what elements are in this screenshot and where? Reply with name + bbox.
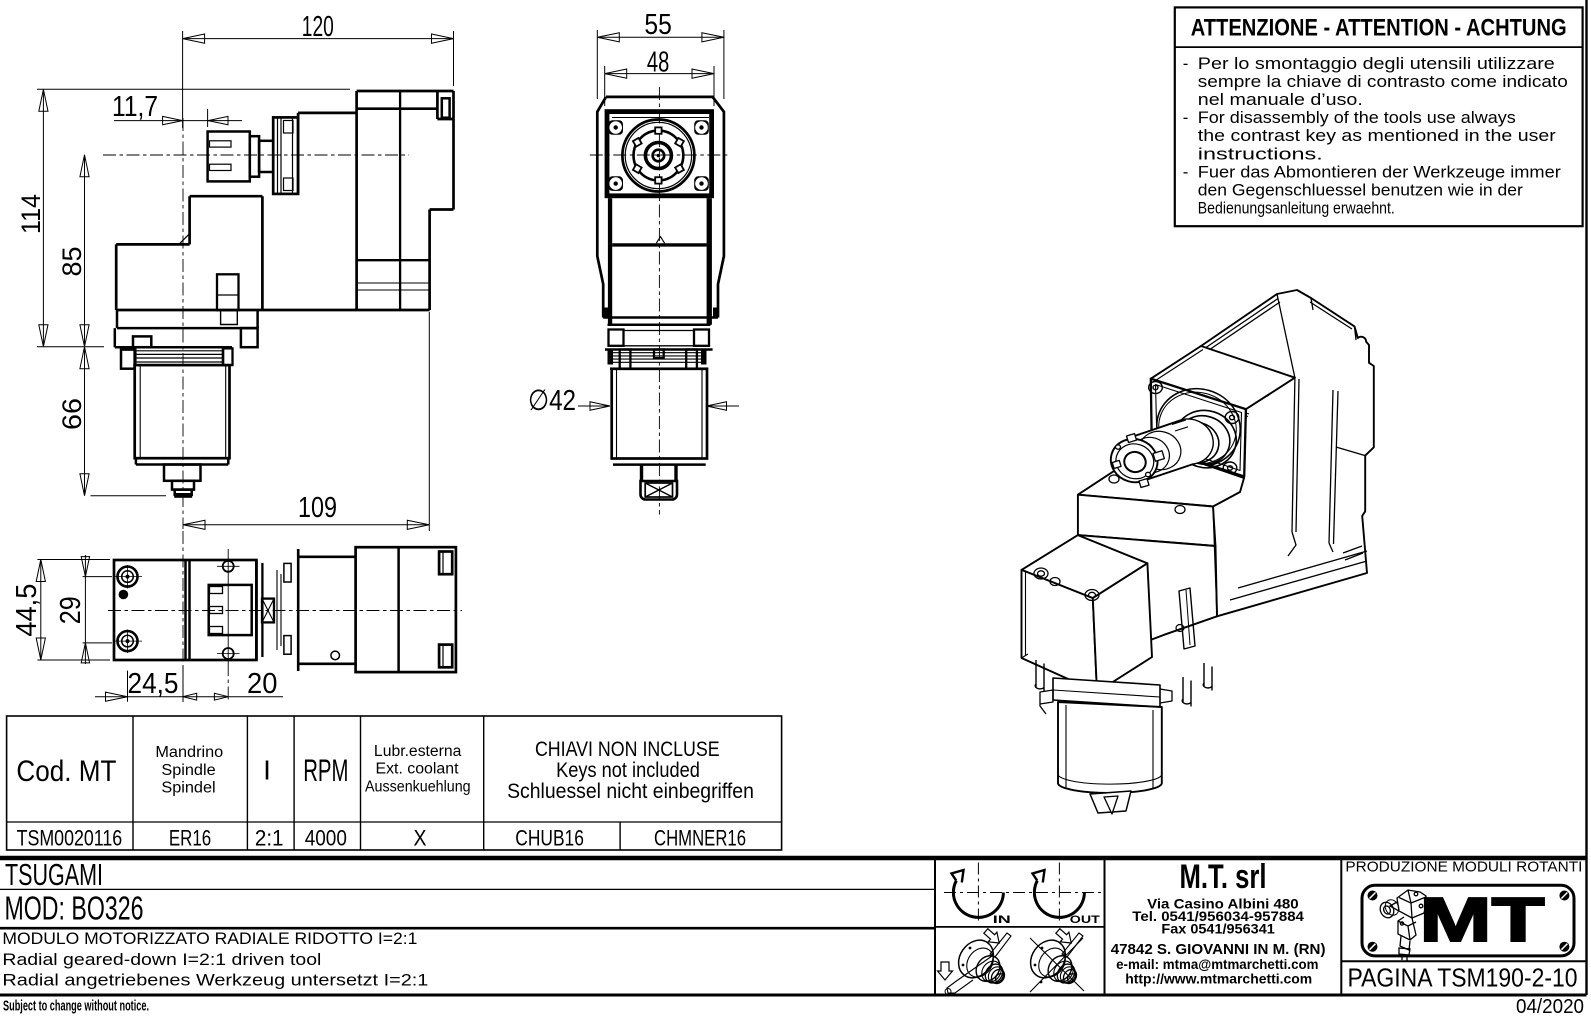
svg-text:CHIAVI NON INCLUSE: CHIAVI NON INCLUSE	[535, 738, 720, 761]
svg-text:Spindle: Spindle	[161, 762, 215, 779]
svg-text:I: I	[263, 754, 271, 785]
svg-text:instructions.: instructions.	[1198, 144, 1323, 163]
svg-text:CHMNER16: CHMNER16	[654, 826, 746, 851]
svg-text:nel manuale d’uso.: nel manuale d’uso.	[1198, 90, 1363, 109]
svg-text:OUT: OUT	[1070, 914, 1100, 926]
svg-text:Ext. coolant: Ext. coolant	[376, 760, 460, 777]
svg-text:For disassembly of the tools u: For disassembly of the tools use always	[1198, 108, 1516, 127]
svg-text:24,5: 24,5	[128, 668, 179, 700]
svg-text:TSUGAMI: TSUGAMI	[5, 858, 103, 892]
svg-text:-: -	[1183, 108, 1189, 127]
svg-text:04/2020: 04/2020	[1516, 996, 1584, 1018]
svg-text:Radial geared-down I=2:1 drive: Radial geared-down I=2:1 driven tool	[2, 951, 321, 969]
svg-text:Bedienungsanleitung erwaehnt.: Bedienungsanleitung erwaehnt.	[1198, 199, 1395, 218]
svg-text:TSM0020116: TSM0020116	[17, 826, 123, 851]
svg-text:MT: MT	[1420, 886, 1545, 955]
svg-text:http://www.mtmarchetti.com: http://www.mtmarchetti.com	[1125, 972, 1312, 987]
svg-text:Aussenkuehlung: Aussenkuehlung	[365, 778, 471, 795]
svg-text:109: 109	[298, 492, 337, 524]
svg-text:Radial angetriebenes Werkzeug: Radial angetriebenes Werkzeug untersetzt…	[2, 971, 428, 989]
svg-text:44,5: 44,5	[11, 584, 43, 637]
svg-text:PAGINA TSM190-2-10: PAGINA TSM190-2-10	[1348, 963, 1578, 993]
svg-text:CHUB16: CHUB16	[515, 826, 584, 851]
svg-text:IN: IN	[993, 914, 1011, 926]
svg-text:4000: 4000	[305, 826, 347, 851]
svg-text:M.T. srl: M.T. srl	[1180, 858, 1267, 896]
svg-text:sempre la chiave di contrasto: sempre la chiave di contrasto come indic…	[1198, 72, 1568, 91]
svg-text:the contrast key as mentioned: the contrast key as mentioned in the use…	[1198, 126, 1556, 145]
svg-text:MOD: BO326: MOD: BO326	[5, 889, 144, 926]
svg-text:RPM: RPM	[303, 752, 348, 788]
svg-text:11,7: 11,7	[112, 91, 158, 123]
svg-text:29: 29	[55, 596, 87, 624]
svg-text:Fuer das Abmontieren der Werkz: Fuer das Abmontieren der Werkzeuge immer	[1198, 162, 1561, 181]
svg-text:Spindel: Spindel	[161, 779, 215, 796]
svg-text:e-mail: mtma@mtmarchetti.com: e-mail: mtma@mtmarchetti.com	[1116, 957, 1318, 972]
svg-text:Subject to change without noti: Subject to change without notice.	[3, 999, 149, 1015]
svg-text:48: 48	[647, 47, 669, 79]
svg-text:Lubr.esterna: Lubr.esterna	[374, 743, 462, 760]
svg-text:Fax 0541/956341: Fax 0541/956341	[1161, 922, 1275, 937]
svg-text:47842 S. GIOVANNI IN M. (RN): 47842 S. GIOVANNI IN M. (RN)	[1111, 941, 1326, 958]
svg-text:-: -	[1183, 54, 1189, 73]
svg-text:MODULO MOTORIZZATO RADIALE RID: MODULO MOTORIZZATO RADIALE RIDOTTO I=2:1	[2, 930, 417, 948]
svg-text:Schluessel nicht einbegriffen: Schluessel nicht einbegriffen	[507, 780, 754, 803]
svg-text:Cod. MT: Cod. MT	[16, 755, 116, 788]
svg-text:114: 114	[16, 194, 46, 234]
svg-text:Mandrino: Mandrino	[155, 744, 223, 761]
svg-text:55: 55	[644, 9, 671, 41]
svg-text:120: 120	[302, 11, 334, 43]
svg-text:20: 20	[247, 668, 277, 700]
svg-text:85: 85	[57, 247, 87, 277]
svg-text:PRODUZIONE MODULI ROTANTI: PRODUZIONE MODULI ROTANTI	[1345, 859, 1582, 876]
svg-text:X: X	[414, 826, 427, 851]
svg-text:-: -	[1183, 162, 1189, 181]
svg-text:Keys not included: Keys not included	[556, 759, 700, 782]
svg-text:ER16: ER16	[169, 826, 211, 851]
svg-text:2:1: 2:1	[255, 826, 284, 851]
svg-text:ATTENZIONE - ATTENTION - ACHTU: ATTENZIONE - ATTENTION - ACHTUNG	[1191, 15, 1567, 42]
svg-text:den Gegenschluessel benutzen w: den Gegenschluessel benutzen wie in der	[1198, 181, 1523, 200]
svg-text:66: 66	[57, 398, 87, 430]
svg-text:∅42: ∅42	[528, 385, 576, 417]
svg-text:Per lo smontaggio degli utensi: Per lo smontaggio degli utensili utilizz…	[1198, 54, 1555, 73]
